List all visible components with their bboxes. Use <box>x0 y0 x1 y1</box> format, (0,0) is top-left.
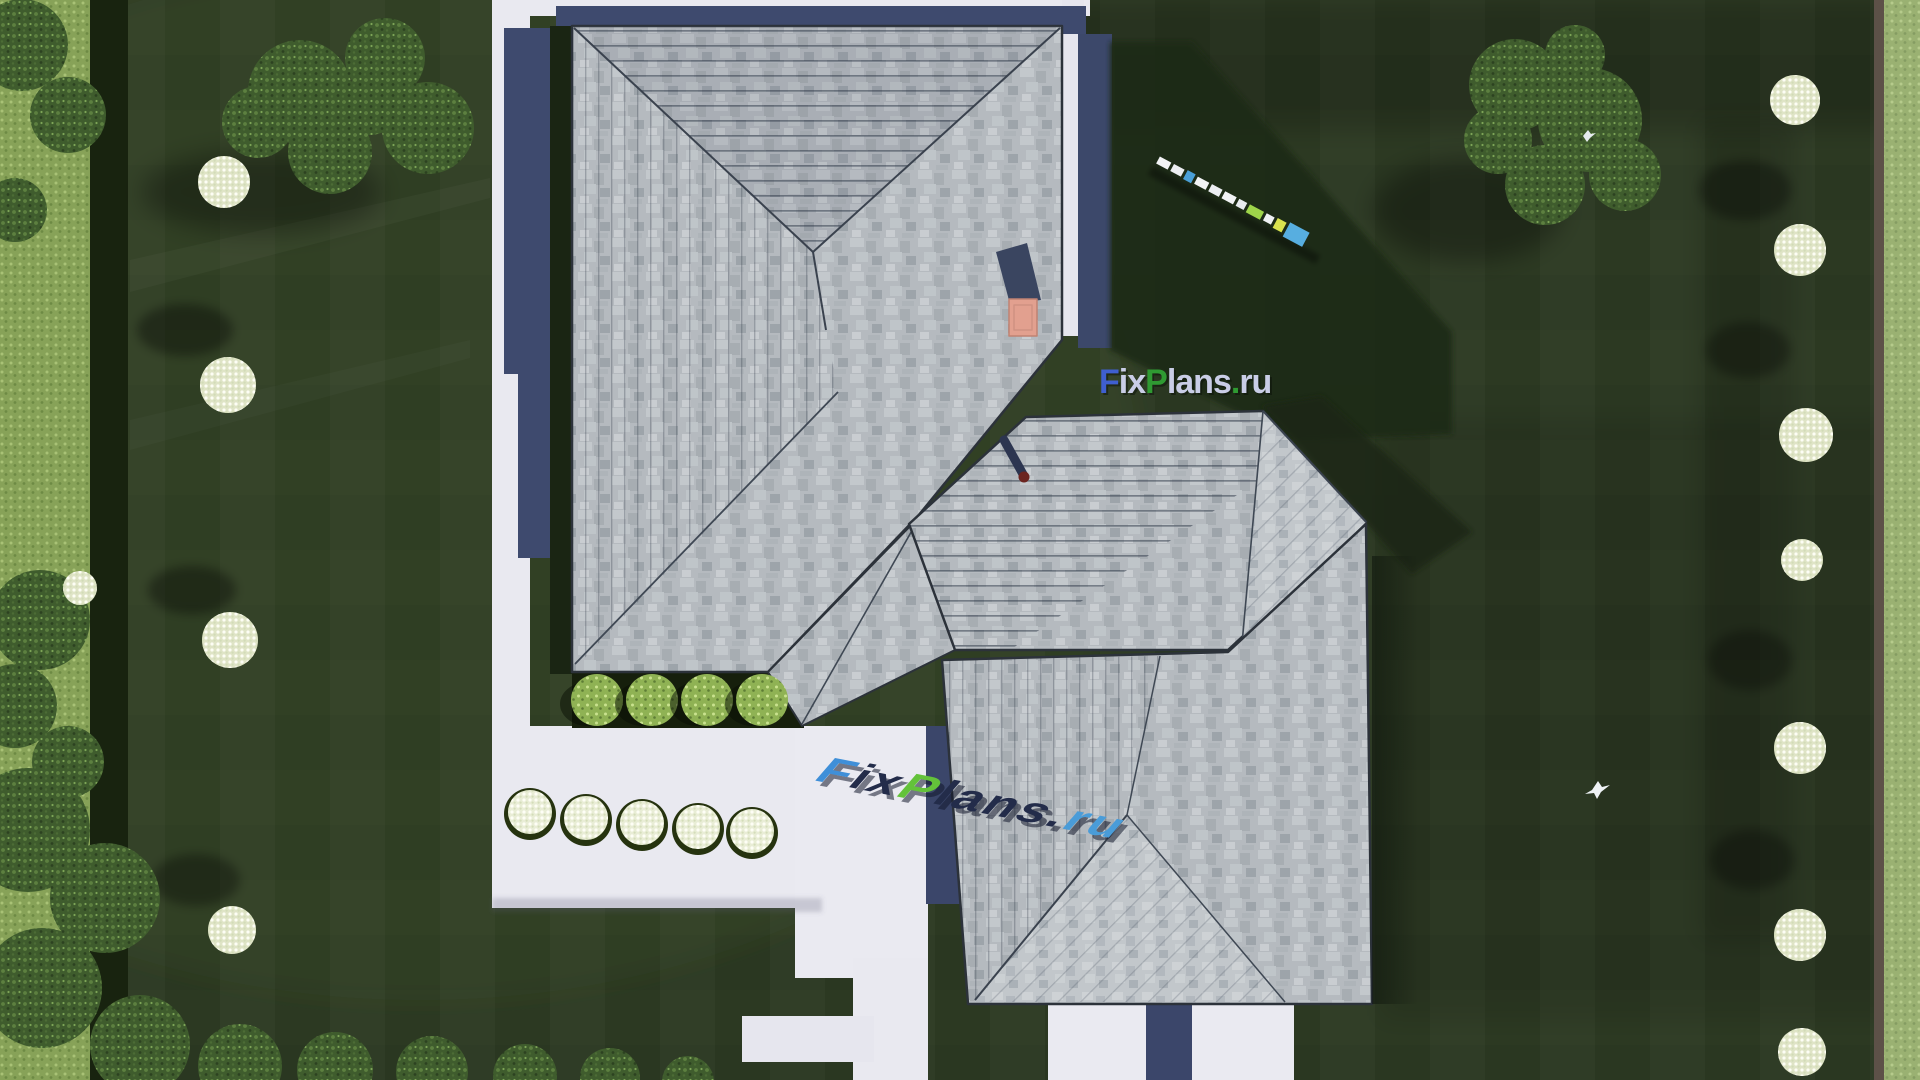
shadow-east-wall <box>1078 34 1112 348</box>
shrub <box>1774 722 1826 774</box>
shrub <box>1770 75 1820 125</box>
shrub <box>1781 539 1823 581</box>
shrub <box>63 571 97 605</box>
shadow-west-wall-upper <box>504 28 552 374</box>
shrub <box>1774 224 1826 276</box>
shrub <box>200 357 256 413</box>
shrub-shadow <box>148 566 236 614</box>
roof-vent <box>1019 472 1030 483</box>
shrub-shadow <box>137 304 233 356</box>
wall-hedge-strip <box>550 26 574 674</box>
aerial-site-render: FixPlans.ru FixPlans.ru FixPlans.ru FixP… <box>0 0 1920 1080</box>
south-path-horizontal <box>742 1016 874 1062</box>
shrub <box>1774 909 1826 961</box>
shrub <box>198 156 250 208</box>
watermark-text: FixPlans.ru <box>1099 363 1271 401</box>
flower-bush <box>726 807 778 859</box>
scene-canvas: FixPlans.ru FixPlans.ru FixPlans.ru FixP… <box>0 0 1920 1080</box>
roof-long-east-shade <box>1372 556 1418 1004</box>
watermark: FixPlans.ru FixPlans.ru <box>1099 363 1273 403</box>
shadow-patio-southeast <box>1146 1004 1192 1080</box>
shrub-shadow <box>1699 160 1791 220</box>
shrub-shadow <box>1706 322 1790 378</box>
shrub-shadow <box>1710 830 1794 890</box>
shadow-west-wall-lower <box>518 374 552 558</box>
shrub <box>1779 408 1833 462</box>
shrub <box>208 906 256 954</box>
patio-edge-shade <box>492 898 822 912</box>
shrub-shadow <box>1708 630 1792 690</box>
flower-bush <box>504 788 556 840</box>
flower-bush <box>672 803 724 855</box>
lawn-dark-right <box>1380 420 1920 1020</box>
flower-bush <box>616 799 668 851</box>
outside-grass-right-highlight <box>1884 0 1920 1080</box>
shrub-shadow <box>152 854 240 906</box>
shrub <box>202 612 258 668</box>
shrub <box>1778 1028 1826 1076</box>
flower-bush <box>560 794 612 846</box>
